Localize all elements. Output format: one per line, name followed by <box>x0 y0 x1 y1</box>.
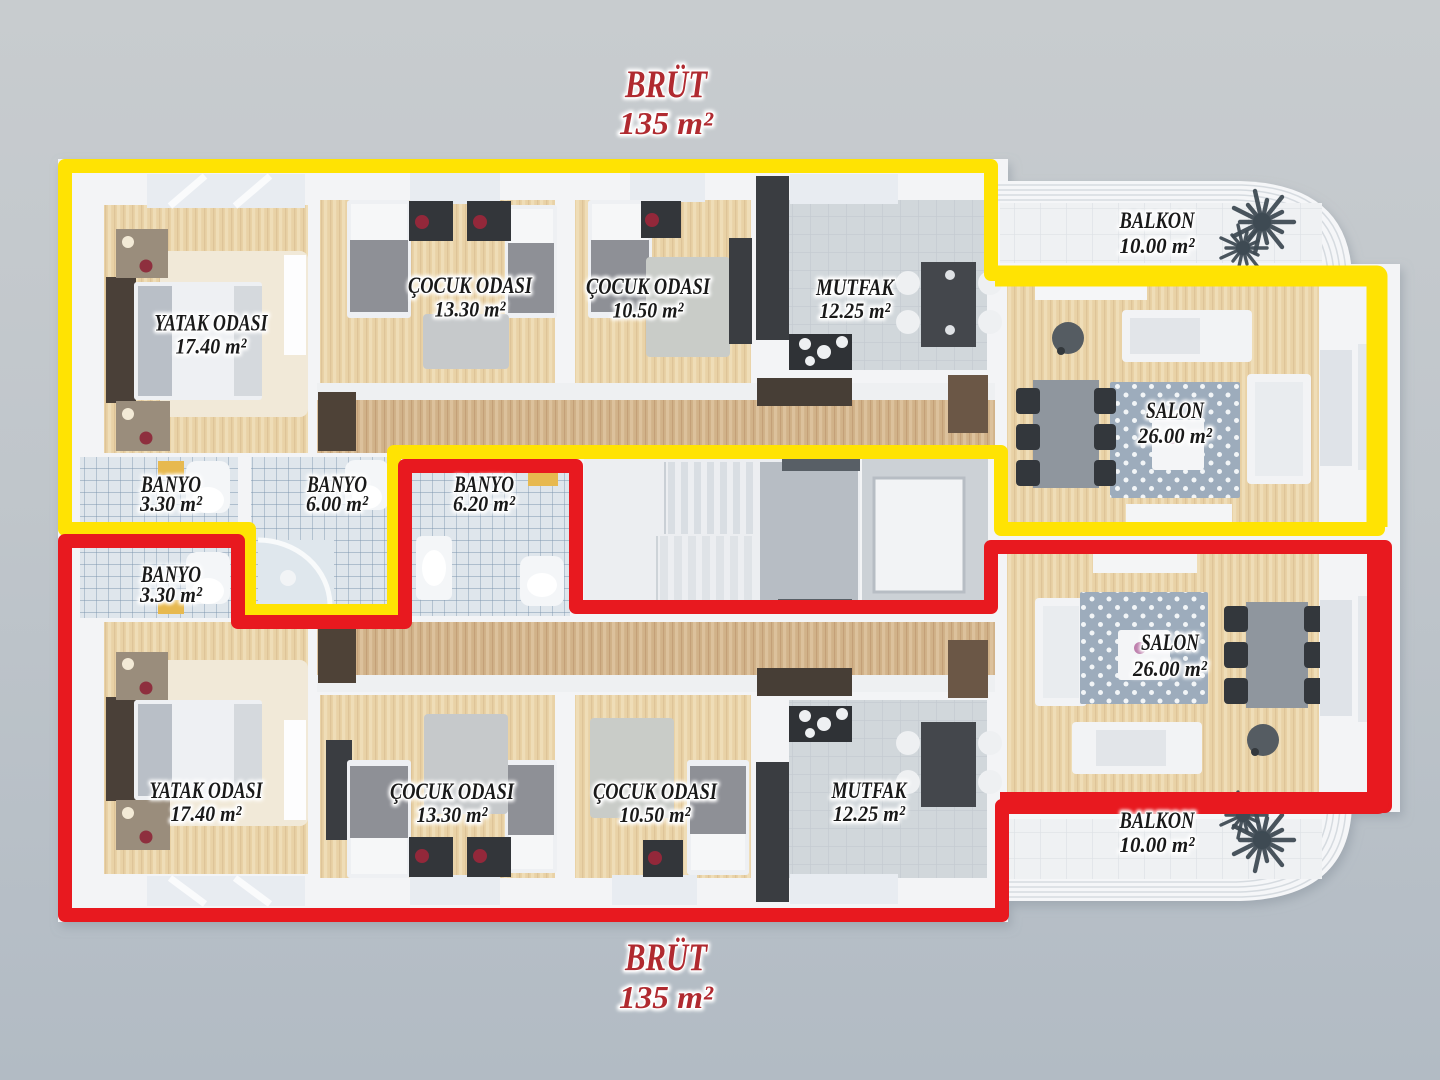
svg-text:26.00 m²: 26.00 m² <box>1132 656 1207 681</box>
svg-text:BRÜT: BRÜT <box>624 63 709 106</box>
svg-text:6.00 m²: 6.00 m² <box>306 491 368 516</box>
svg-text:135 m²: 135 m² <box>619 105 714 141</box>
svg-text:135 m²: 135 m² <box>619 979 714 1015</box>
svg-text:17.40 m²: 17.40 m² <box>171 801 242 826</box>
svg-text:MUTFAK: MUTFAK <box>831 778 908 803</box>
svg-text:10.00 m²: 10.00 m² <box>1120 233 1195 258</box>
svg-text:3.30 m²: 3.30 m² <box>139 491 202 516</box>
svg-text:6.20 m²: 6.20 m² <box>453 491 515 516</box>
svg-text:ÇOCUK ODASI: ÇOCUK ODASI <box>586 274 711 299</box>
svg-text:YATAK ODASI: YATAK ODASI <box>150 778 264 803</box>
svg-text:SALON: SALON <box>1141 630 1200 655</box>
svg-text:SALON: SALON <box>1146 398 1205 423</box>
svg-text:12.25 m²: 12.25 m² <box>833 801 905 826</box>
svg-text:MUTFAK: MUTFAK <box>815 275 895 300</box>
svg-text:ÇOCUK ODASI: ÇOCUK ODASI <box>593 779 718 804</box>
svg-text:10.50 m²: 10.50 m² <box>613 298 684 323</box>
svg-text:26.00 m²: 26.00 m² <box>1137 423 1212 448</box>
svg-text:13.30 m²: 13.30 m² <box>417 802 488 827</box>
svg-text:ÇOCUK ODASI: ÇOCUK ODASI <box>408 273 533 298</box>
svg-text:3.30 m²: 3.30 m² <box>139 582 202 607</box>
svg-text:13.30 m²: 13.30 m² <box>435 297 506 322</box>
svg-text:BALKON: BALKON <box>1119 208 1196 233</box>
svg-text:BRÜT: BRÜT <box>624 936 709 979</box>
svg-text:BALKON: BALKON <box>1119 808 1196 833</box>
svg-text:ÇOCUK ODASI: ÇOCUK ODASI <box>390 779 515 804</box>
svg-text:12.25 m²: 12.25 m² <box>820 298 891 323</box>
svg-text:17.40 m²: 17.40 m² <box>176 334 247 359</box>
svg-text:10.00 m²: 10.00 m² <box>1120 832 1195 857</box>
svg-text:YATAK ODASI: YATAK ODASI <box>155 311 269 336</box>
svg-text:10.50 m²: 10.50 m² <box>620 802 691 827</box>
